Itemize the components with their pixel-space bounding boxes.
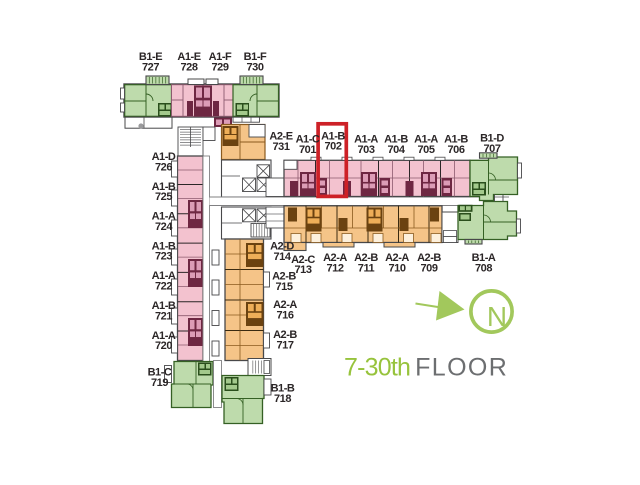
svg-text:A1-E728: A1-E728 [177, 51, 200, 73]
svg-text:7-30thFLOOR: 7-30thFLOOR [344, 353, 508, 381]
svg-text:B1-E727: B1-E727 [139, 51, 162, 73]
svg-text:N: N [487, 301, 507, 332]
svg-text:A2-E731: A2-E731 [269, 131, 292, 153]
